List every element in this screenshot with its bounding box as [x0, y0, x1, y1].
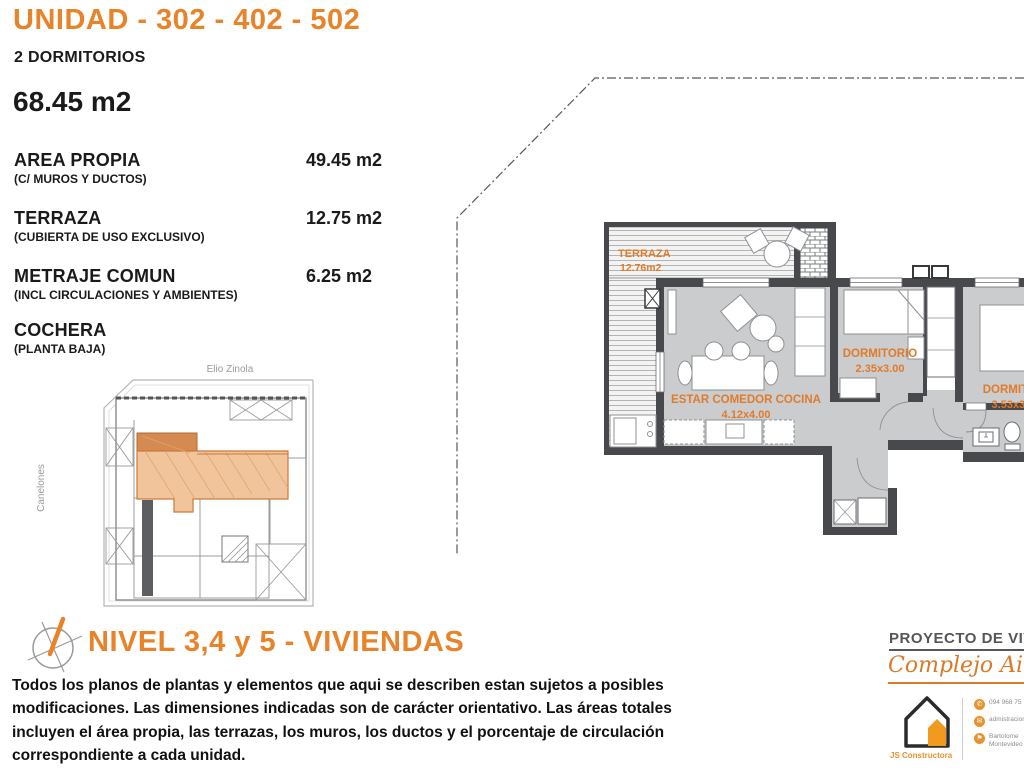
email-icon: ✉ — [974, 716, 985, 727]
area-note: (INCL CIRCULACIONES Y AMBIENTES) — [14, 288, 414, 302]
disclaimer-text: Todos los planos de plantas y elementos … — [12, 674, 704, 767]
total-area: 68.45 m2 — [13, 86, 131, 118]
area-value: 49.45 m2 — [306, 150, 382, 171]
bedroom1-label: DORMITORIO — [843, 348, 918, 360]
site-key-plan: Elio Zinola Canelones — [30, 358, 360, 628]
project-name: Complejo Aires de Cordón — [888, 653, 1024, 684]
footer-divider — [962, 698, 963, 760]
terraza-area-label: 12.76m2 — [620, 262, 662, 274]
area-label: COCHERA — [14, 320, 414, 341]
project-label: PROYECTO DE VIVIENDAS — [889, 630, 1024, 651]
area-row-comun: METRAJE COMUN (INCL CIRCULACIONES Y AMBI… — [14, 266, 414, 302]
area-row-propia: AREA PROPIA (C/ MUROS Y DUCTOS) 49.45 m2 — [14, 150, 414, 186]
area-value: 12.75 m2 — [306, 208, 382, 229]
area-note: (PLANTA BAJA) — [14, 342, 414, 356]
phone-icon: ✆ — [974, 699, 985, 710]
contact-address-line1: Bartolome — [989, 733, 1023, 741]
unit-title: UNIDAD - 302 - 402 - 502 — [13, 4, 360, 37]
bedroom1-dims: 2.35x3.00 — [856, 363, 905, 375]
street-left-label: Canelones — [36, 464, 47, 512]
bedroom2-label: DORMITORIO — [983, 384, 1024, 396]
terraza-label: TERRAZA — [618, 248, 671, 260]
level-title: NIVEL 3,4 y 5 - VIVIENDAS — [88, 626, 464, 659]
contact-email: ✉ admistracion — [974, 716, 1024, 727]
contact-phone-text: 094 968 75 — [989, 699, 1022, 707]
contact-email-text: admistracion — [989, 716, 1024, 724]
living-room-dims: 4.12x4.00 — [722, 409, 771, 421]
area-row-terraza: TERRAZA (CUBIERTA DE USO EXCLUSIVO) 12.7… — [14, 208, 414, 244]
living-room-label: ESTAR COMEDOR COCINA — [671, 394, 821, 406]
unit-subtitle: 2 DORMITORIOS — [14, 49, 146, 67]
contact-address-line2: Montevideo — [989, 741, 1023, 749]
contact-phone: ✆ 094 968 75 — [974, 699, 1024, 710]
location-icon: ⚑ — [974, 733, 985, 744]
bedroom2-dims: 3.53x3.00 — [992, 399, 1024, 411]
area-value: 6.25 m2 — [306, 266, 372, 287]
contact-address: ⚑ Bartolome Montevideo — [974, 733, 1024, 750]
area-note: (CUBIERTA DE USO EXCLUSIVO) — [14, 230, 414, 244]
area-row-cochera: COCHERA (PLANTA BAJA) — [14, 320, 414, 356]
builder-name: JS Constructora — [890, 751, 970, 760]
builder-logo-icon — [897, 692, 957, 752]
area-note: (C/ MUROS Y DUCTOS) — [14, 172, 414, 186]
compass-icon — [22, 612, 88, 676]
contact-list: ✆ 094 968 75 ✉ admistracion ⚑ Bartolome … — [974, 699, 1024, 756]
street-top-label: Elio Zinola — [207, 364, 254, 375]
main-floor-plan: TERRAZA 12.76m2 — [430, 60, 1024, 570]
